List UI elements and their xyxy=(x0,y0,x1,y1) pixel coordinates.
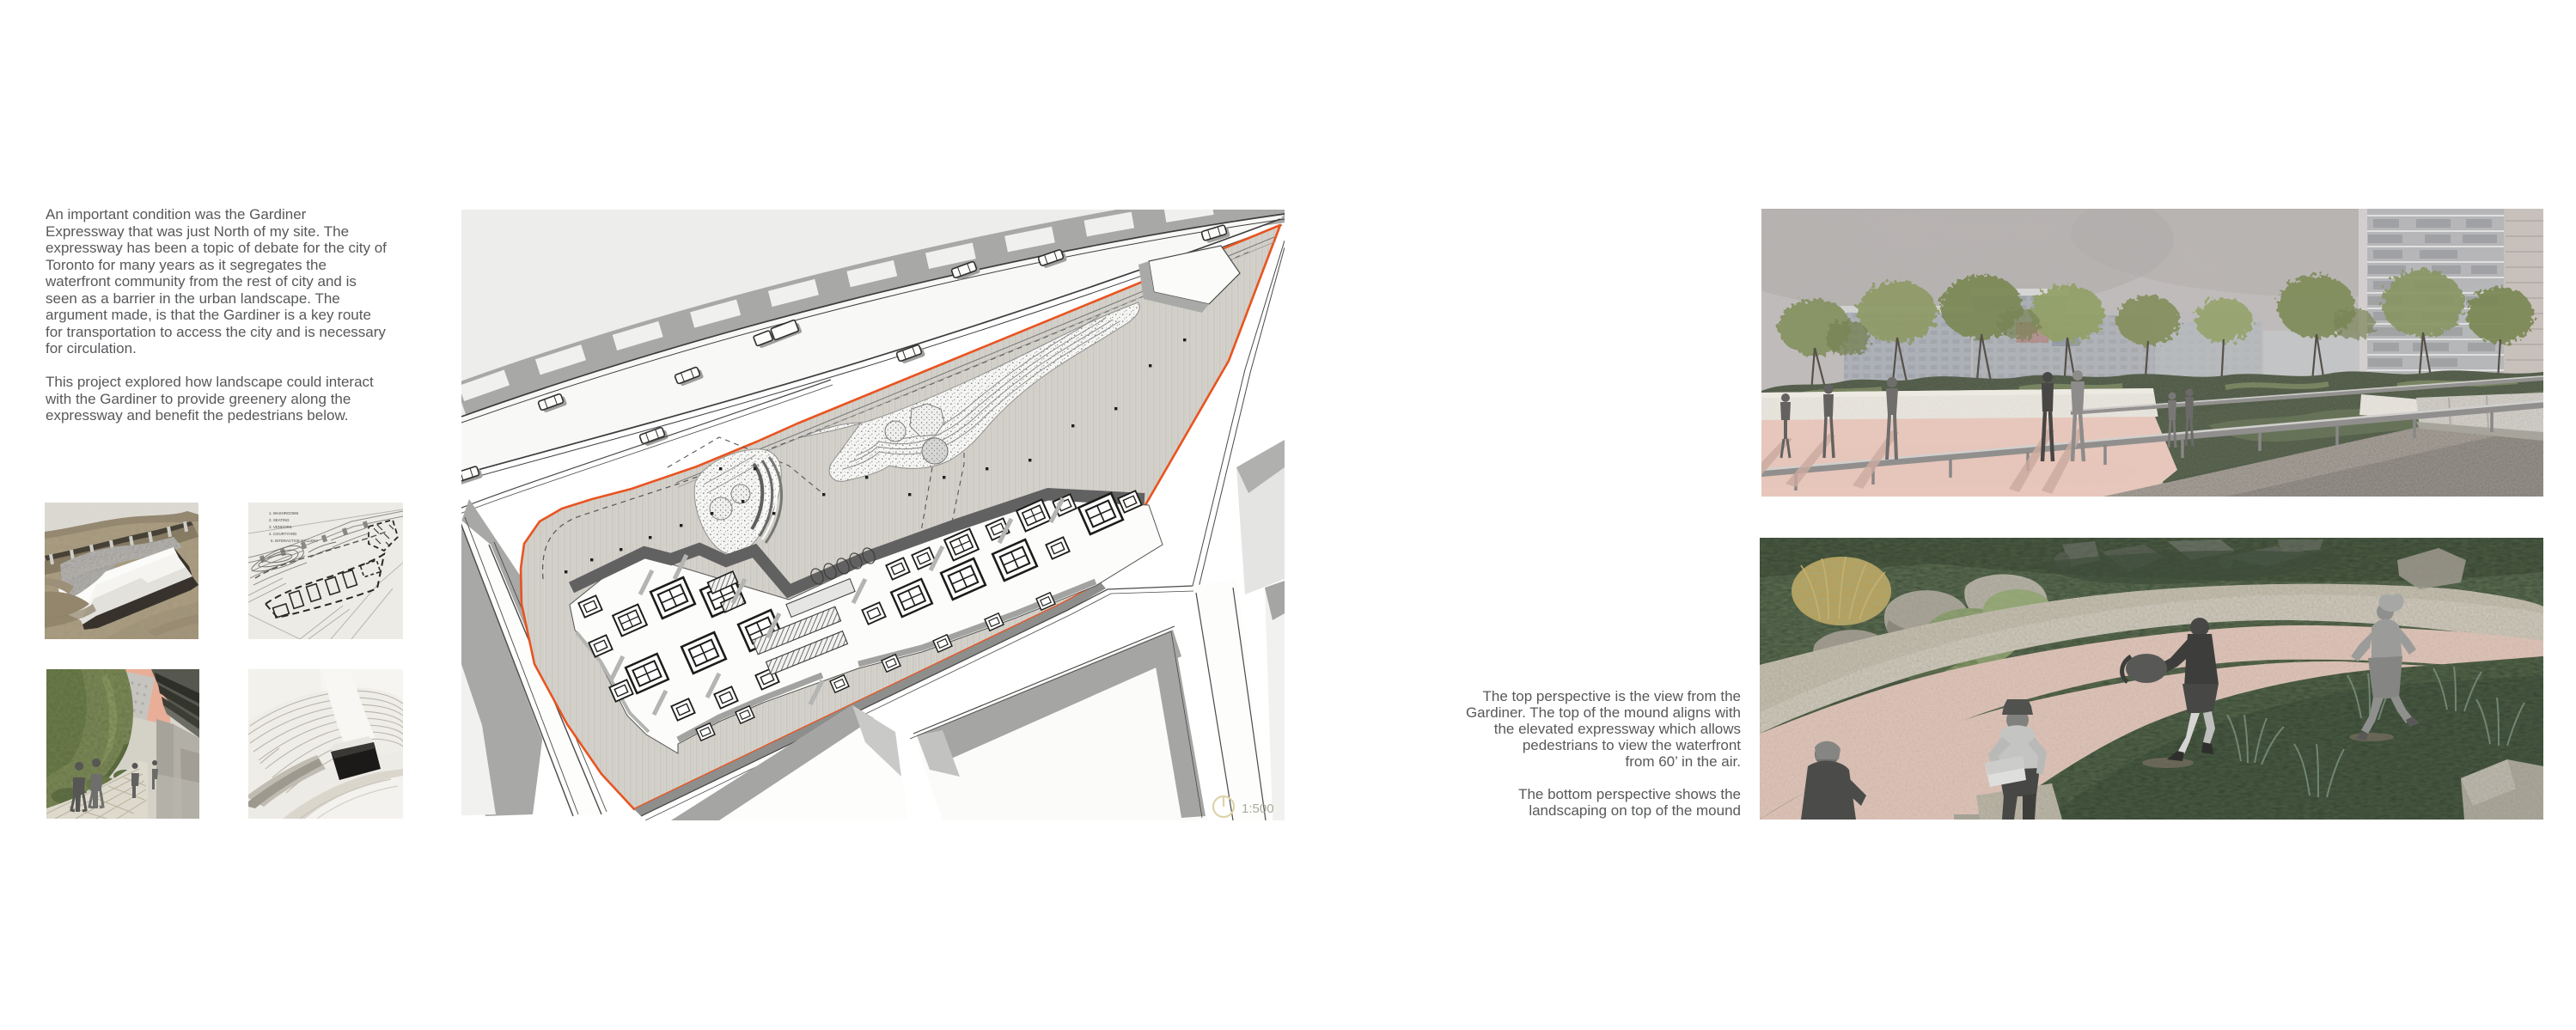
svg-text:1:500: 1:500 xyxy=(1242,801,1274,816)
svg-text:2. SEATING: 2. SEATING xyxy=(269,518,290,522)
svg-text:4. COURTYARD: 4. COURTYARD xyxy=(269,532,296,536)
svg-text:3. VENDORS: 3. VENDORS xyxy=(269,525,292,529)
svg-text:5. INTERACTIVE GALLERY: 5. INTERACTIVE GALLERY xyxy=(271,539,318,543)
svg-text:1. WASHROOMS: 1. WASHROOMS xyxy=(269,511,299,515)
